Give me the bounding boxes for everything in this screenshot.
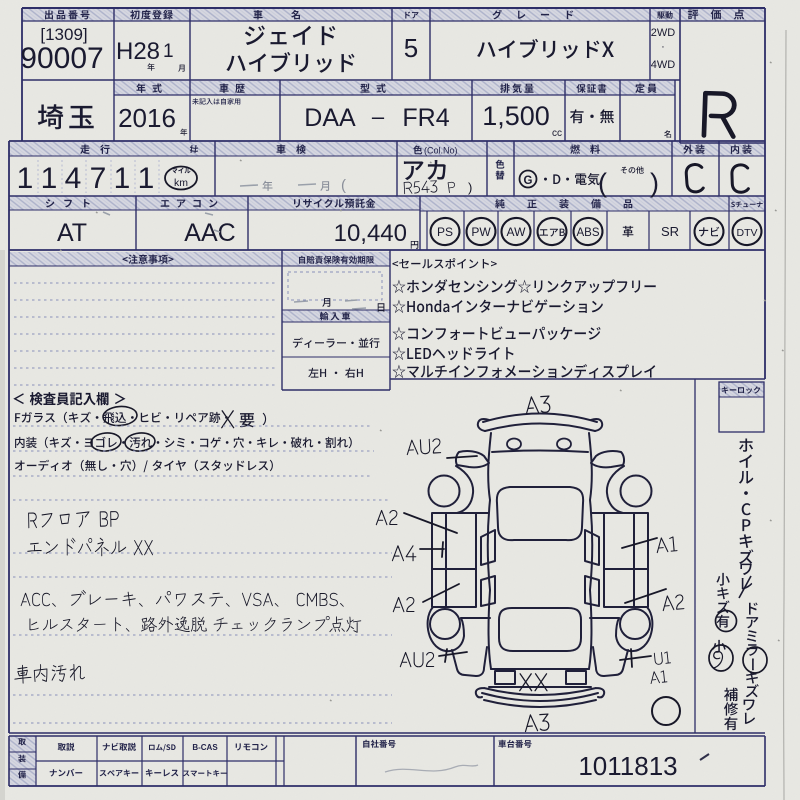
svg-text:1: 1 [163, 41, 174, 62]
svg-text:G: G [524, 175, 533, 187]
svg-text:H28: H28 [116, 38, 160, 65]
svg-text:1: 1 [138, 162, 155, 195]
svg-text:B-CAS: B-CAS [192, 743, 218, 752]
svg-text:PW: PW [471, 225, 491, 239]
svg-text:km: km [174, 177, 188, 189]
svg-text:7: 7 [90, 162, 107, 195]
svg-text:(Col.No): (Col.No) [424, 146, 458, 156]
svg-text:2016: 2016 [118, 103, 176, 133]
svg-text:PS: PS [437, 225, 453, 239]
svg-text:90007: 90007 [20, 42, 103, 75]
svg-text:): ) [650, 168, 659, 198]
svg-text:–: – [372, 104, 385, 129]
svg-text:DAA: DAA [304, 104, 356, 132]
svg-text:1: 1 [41, 162, 58, 195]
svg-text:AW: AW [507, 225, 527, 239]
svg-text:FR4: FR4 [402, 104, 449, 132]
svg-text:1: 1 [114, 162, 131, 195]
svg-text:4: 4 [65, 162, 82, 195]
svg-text:4WD: 4WD [651, 59, 676, 71]
svg-text:DTV: DTV [737, 227, 758, 239]
svg-text:cc: cc [552, 128, 562, 139]
svg-text:(: ( [598, 168, 607, 198]
svg-text:·: · [661, 41, 665, 53]
svg-text:1011813: 1011813 [578, 751, 677, 781]
svg-text:2WD: 2WD [651, 27, 676, 39]
svg-text:10,440: 10,440 [334, 220, 407, 247]
svg-text:): ) [468, 180, 472, 195]
svg-text:1,500: 1,500 [482, 101, 550, 131]
svg-text:5: 5 [404, 33, 418, 63]
svg-text:1: 1 [17, 162, 34, 195]
svg-text:SR: SR [661, 224, 679, 239]
svg-text:AT: AT [57, 219, 87, 247]
svg-text:ABS: ABS [576, 227, 599, 239]
svg-text:(: ( [341, 177, 346, 194]
svg-text:AAC: AAC [184, 219, 235, 247]
